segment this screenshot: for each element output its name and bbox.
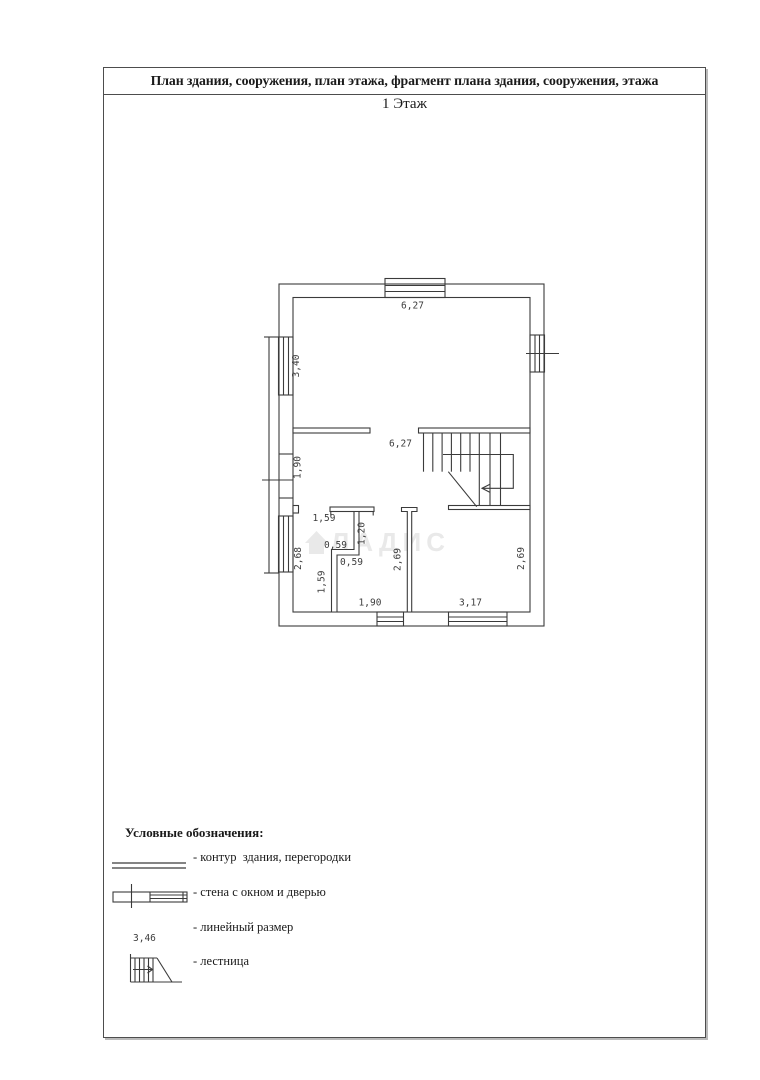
partition-hall-right	[419, 428, 531, 433]
double-line-icon	[110, 859, 190, 873]
legend-item-linear-dimension: - линейный размер	[193, 920, 293, 935]
dim-bath-jog-upper: 0,59	[324, 540, 347, 551]
dim-hall-width: 6,27	[389, 439, 412, 450]
legend-item-wall-window-door: - стена с окном и дверью	[193, 885, 326, 900]
legend-item-stairs: - лестница	[193, 954, 249, 969]
partition-stairs-bottom	[449, 506, 531, 510]
document-page: План здания, сооружения, план этажа, фра…	[0, 0, 760, 1080]
stair-break-line	[448, 472, 476, 507]
dim-top-width: 6,27	[401, 301, 424, 312]
window-bottom-right	[449, 612, 508, 626]
partition-hall-left	[293, 428, 370, 433]
dim-left-door: 1,90	[293, 456, 304, 479]
dim-bath-door-height: 1,20	[357, 522, 368, 545]
wall-notch	[293, 506, 299, 514]
stair-flight-line	[443, 455, 513, 489]
floor-plan-svg: ЛАДИС	[255, 270, 570, 640]
dim-bath-top-width: 1,59	[313, 513, 336, 524]
window-bottom-left	[377, 612, 404, 626]
dim-left-window-lower: 2,68	[293, 547, 304, 570]
dim-bath-jog-lower: 0,59	[340, 557, 363, 568]
dim-room-right-height: 2,69	[516, 547, 527, 570]
window-right	[526, 335, 559, 372]
partition-bath-top	[330, 507, 374, 512]
window-top	[385, 279, 445, 298]
legend-title: Условные обозначения:	[125, 825, 264, 841]
page-title: План здания, сооружения, план этажа, фра…	[151, 73, 659, 89]
dim-room-left-height: 2,69	[393, 548, 404, 571]
dim-bath-left-height: 1,59	[317, 570, 328, 593]
window-left-lower	[279, 516, 294, 572]
stairs-icon	[127, 951, 185, 985]
legend-item-contour: - контур здания, перегородки	[193, 850, 351, 865]
wall-window-door-icon	[110, 882, 194, 910]
staircase	[424, 433, 514, 507]
dim-bottom-right-width: 3,17	[459, 598, 482, 609]
header-row: План здания, сооружения, план этажа, фра…	[104, 68, 705, 95]
floor-subtitle: 1 Этаж	[104, 96, 705, 113]
dim-bottom-left-width: 1,90	[359, 598, 382, 609]
partition-room-divider	[402, 508, 418, 613]
dim-left-window-upper: 3,40	[291, 354, 302, 377]
linear-dimension-sample: 3,46	[133, 933, 156, 944]
